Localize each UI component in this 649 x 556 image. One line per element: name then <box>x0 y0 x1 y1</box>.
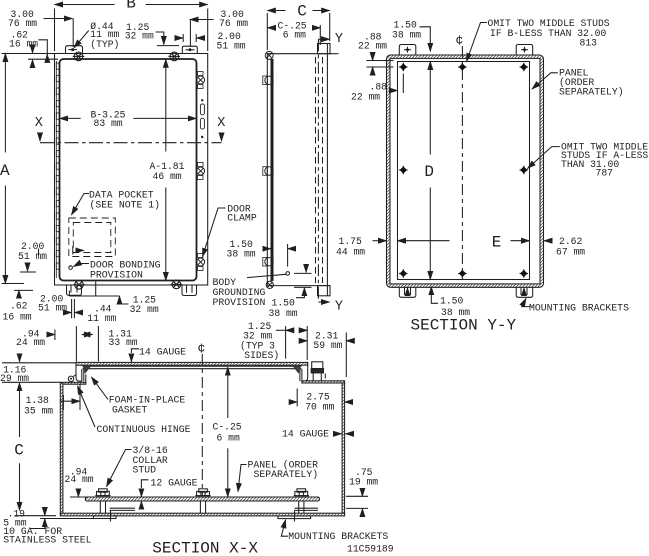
svg-text:6 mm: 6 mm <box>217 433 240 444</box>
svg-text:1.50: 1.50 <box>272 298 295 309</box>
svg-text:.62: .62 <box>10 301 28 312</box>
svg-text:11 mm: 11 mm <box>87 313 116 324</box>
svg-text:A: A <box>0 162 10 180</box>
svg-text:51 mm: 51 mm <box>217 40 246 51</box>
svg-text:11C59189: 11C59189 <box>347 543 394 554</box>
svg-text:E: E <box>492 234 502 252</box>
svg-text:24 mm: 24 mm <box>16 337 45 348</box>
svg-text:38 mm: 38 mm <box>227 248 256 259</box>
svg-text:CLAMP: CLAMP <box>227 213 257 224</box>
svg-text:38 mm: 38 mm <box>392 30 421 41</box>
svg-text:24 mm: 24 mm <box>65 474 94 485</box>
svg-text:83 mm: 83 mm <box>94 118 123 129</box>
svg-text:PROVISION: PROVISION <box>213 297 266 308</box>
svg-text:C: C <box>297 2 307 20</box>
svg-text:PROVISION: PROVISION <box>90 270 143 281</box>
svg-text:D: D <box>424 163 434 181</box>
svg-text:Y: Y <box>335 32 343 47</box>
svg-text:76 mm: 76 mm <box>8 18 37 29</box>
svg-text:C-.25: C-.25 <box>213 422 242 433</box>
svg-text:SEPARATELY): SEPARATELY) <box>254 469 319 480</box>
svg-text:SECTION X-X: SECTION X-X <box>152 539 258 556</box>
svg-text:X: X <box>217 116 225 131</box>
svg-text:16 mm: 16 mm <box>9 38 38 49</box>
svg-text:Y: Y <box>335 300 343 315</box>
svg-text:70 mm: 70 mm <box>305 402 334 413</box>
svg-text:STAINLESS STEEL: STAINLESS STEEL <box>3 534 91 545</box>
svg-text:1.50: 1.50 <box>440 296 463 307</box>
svg-text:29 mm: 29 mm <box>0 373 29 384</box>
svg-text:12 GAUGE: 12 GAUGE <box>151 477 198 488</box>
svg-text:6 mm: 6 mm <box>283 29 306 40</box>
svg-text:¢: ¢ <box>456 33 464 48</box>
svg-text:51 mm: 51 mm <box>18 251 47 262</box>
svg-text:19 mm: 19 mm <box>349 476 378 487</box>
svg-text:35 mm: 35 mm <box>24 406 53 417</box>
svg-text:14 GAUGE: 14 GAUGE <box>139 347 186 358</box>
svg-text:X: X <box>35 116 43 131</box>
svg-text:1.38: 1.38 <box>26 395 49 406</box>
svg-text:B: B <box>126 0 136 13</box>
svg-text:51 mm: 51 mm <box>38 302 67 313</box>
svg-text:GASKET: GASKET <box>112 405 147 416</box>
svg-text:22 mm: 22 mm <box>358 41 387 52</box>
svg-text:813: 813 <box>580 38 598 49</box>
svg-text:76 mm: 76 mm <box>219 18 248 29</box>
svg-text:CONTINUOUS HINGE: CONTINUOUS HINGE <box>97 424 191 435</box>
svg-text:C: C <box>14 442 24 460</box>
svg-text:STUD: STUD <box>133 464 157 475</box>
svg-text:(TYP): (TYP) <box>90 39 119 50</box>
svg-text:SEPARATELY): SEPARATELY) <box>559 87 624 98</box>
svg-text:MOUNTING BRACKETS: MOUNTING BRACKETS <box>529 303 629 314</box>
svg-text:1.75: 1.75 <box>339 236 362 247</box>
svg-text:¢: ¢ <box>198 341 206 356</box>
svg-text:16 mm: 16 mm <box>3 312 32 323</box>
svg-text:SIDES): SIDES) <box>244 350 279 361</box>
svg-text:32 mm: 32 mm <box>130 304 159 315</box>
svg-text:33 mm: 33 mm <box>109 337 138 348</box>
svg-text:14 GAUGE: 14 GAUGE <box>282 428 329 439</box>
svg-text:2.62: 2.62 <box>559 236 582 247</box>
svg-text:46 mm: 46 mm <box>153 171 182 182</box>
svg-text:38 mm: 38 mm <box>269 308 298 319</box>
svg-text:67 mm: 67 mm <box>556 247 585 258</box>
svg-text:44 mm: 44 mm <box>336 247 365 258</box>
svg-text:22 mm: 22 mm <box>351 92 380 103</box>
svg-text:787: 787 <box>596 168 614 179</box>
svg-text:32 mm: 32 mm <box>125 31 154 42</box>
svg-text:SECTION Y-Y: SECTION Y-Y <box>411 317 517 335</box>
svg-text:(SEE NOTE 1): (SEE NOTE 1) <box>90 199 161 210</box>
svg-text:59 mm: 59 mm <box>313 340 342 351</box>
svg-text:MOUNTING BRACKETS: MOUNTING BRACKETS <box>288 531 388 542</box>
